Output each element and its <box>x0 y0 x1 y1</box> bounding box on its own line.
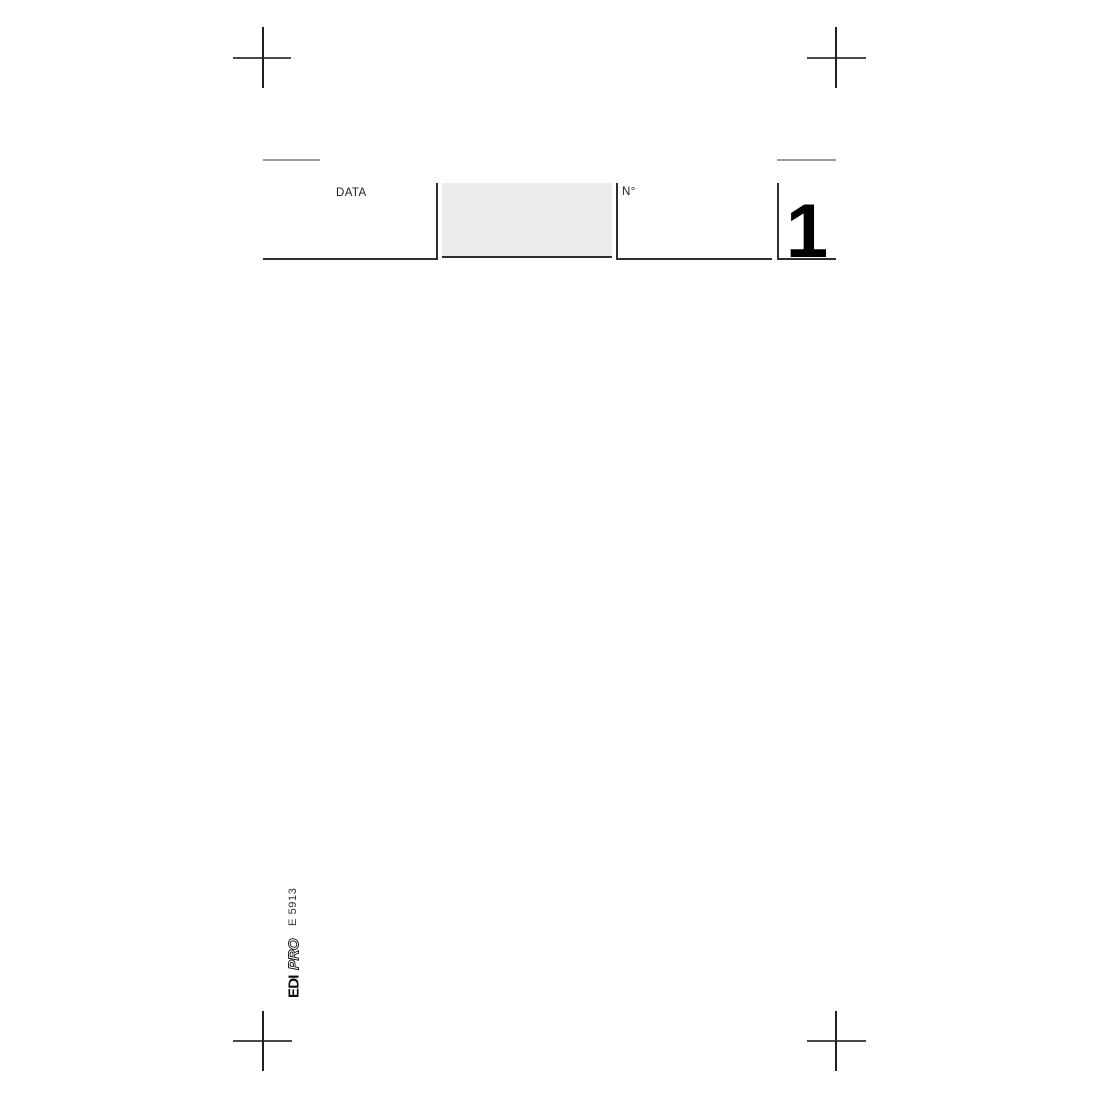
edipro-logo-pro-text: PRO <box>286 938 303 970</box>
crop-mark-top-right-vertical <box>835 27 837 88</box>
form-code: E 5913 <box>287 888 299 926</box>
edipro-logo-edi-text: EDI <box>286 975 303 998</box>
crop-mark-top-left-vertical <box>262 27 264 88</box>
crop-mark-bottom-right-vertical <box>835 1011 837 1071</box>
edipro-logo: EDI PRO <box>284 935 302 998</box>
date-field-label: DATA <box>336 187 367 199</box>
shaded-blank-field <box>442 183 612 258</box>
printer-imprint: EDI PRO E 5913 <box>284 882 302 998</box>
top-rule-left <box>263 159 320 161</box>
top-rule-right <box>777 159 836 161</box>
date-field-right-rule <box>436 183 438 260</box>
date-field-bottom-rule <box>263 258 438 260</box>
page-number: 1 <box>778 202 836 262</box>
crop-mark-bottom-left-vertical <box>262 1011 264 1071</box>
number-field-left-rule <box>616 183 618 260</box>
number-field-label: N° <box>622 186 636 198</box>
number-field-bottom-rule <box>616 258 772 260</box>
